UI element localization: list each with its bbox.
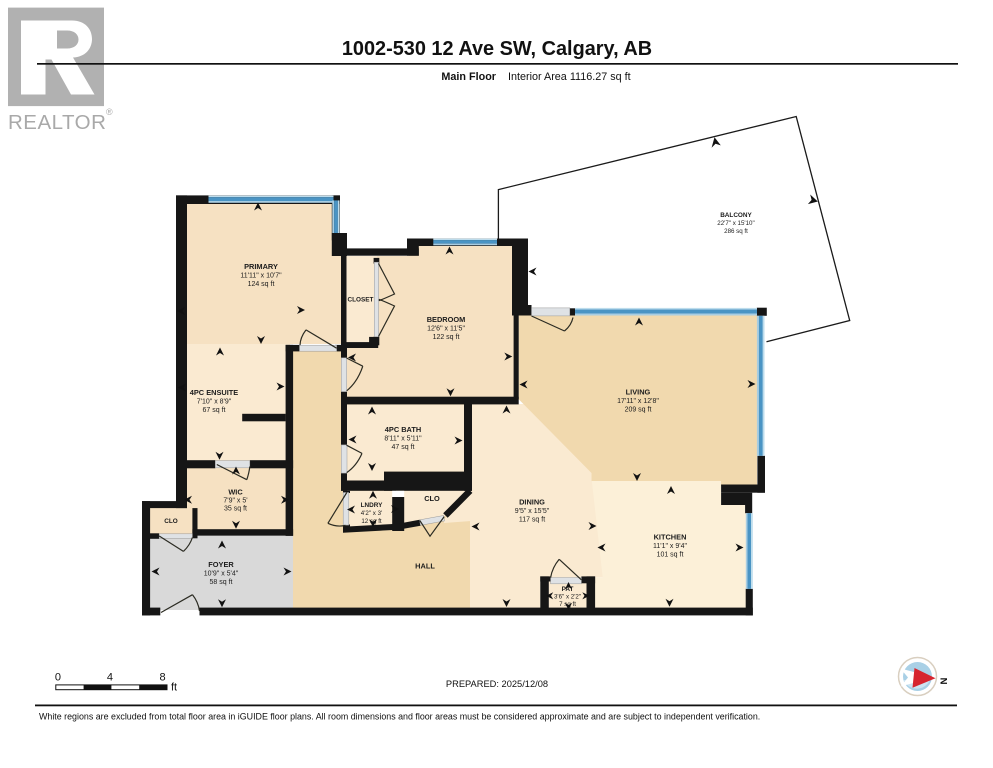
- svg-text:209 sq ft: 209 sq ft: [625, 407, 652, 414]
- svg-text:47 sq ft: 47 sq ft: [392, 444, 415, 451]
- svg-text:FOYER: FOYER: [208, 560, 234, 569]
- svg-text:122 sq ft: 122 sq ft: [433, 334, 460, 341]
- svg-text:Interior Area 1116.27 sq ft: Interior Area 1116.27 sq ft: [508, 71, 631, 83]
- svg-text:CLO: CLO: [164, 518, 178, 525]
- svg-text:8'11" x 5'11": 8'11" x 5'11": [384, 436, 422, 443]
- svg-text:REALTOR: REALTOR: [8, 111, 106, 134]
- svg-text:8: 8: [160, 672, 166, 684]
- svg-text:17'11" x 12'8": 17'11" x 12'8": [617, 398, 659, 405]
- svg-text:35 sq ft: 35 sq ft: [224, 506, 247, 513]
- svg-text:101 sq ft: 101 sq ft: [657, 552, 684, 559]
- svg-text:11'1" x 9'4": 11'1" x 9'4": [653, 543, 687, 550]
- svg-text:1002-530 12 Ave SW, Calgary, A: 1002-530 12 Ave SW, Calgary, AB: [342, 38, 652, 60]
- svg-text:DINING: DINING: [519, 498, 545, 507]
- svg-text:PRIMARY: PRIMARY: [244, 262, 278, 271]
- svg-text:4PC ENSUITE: 4PC ENSUITE: [190, 388, 239, 397]
- svg-text:22'7" x 15'10": 22'7" x 15'10": [717, 220, 754, 227]
- svg-text:KITCHEN: KITCHEN: [654, 533, 687, 542]
- svg-text:286 sq ft: 286 sq ft: [724, 228, 748, 235]
- svg-text:PREPARED: 2025/12/08: PREPARED: 2025/12/08: [446, 679, 548, 689]
- svg-text:10'9" x 5'4": 10'9" x 5'4": [204, 571, 239, 578]
- svg-text:11'11" x 10'7": 11'11" x 10'7": [240, 273, 282, 280]
- svg-text:7'9" x 5': 7'9" x 5': [223, 498, 247, 505]
- svg-text:58 sq ft: 58 sq ft: [210, 579, 233, 586]
- svg-text:LIVING: LIVING: [626, 388, 651, 397]
- svg-text:ft: ft: [171, 682, 177, 694]
- svg-text:12'6" x 11'5": 12'6" x 11'5": [427, 326, 465, 333]
- svg-text:N: N: [938, 678, 949, 685]
- svg-text:BALCONY: BALCONY: [720, 212, 752, 219]
- svg-text:CLOSET: CLOSET: [348, 297, 374, 304]
- svg-text:HALL: HALL: [415, 562, 435, 571]
- svg-text:7'10" x 8'9": 7'10" x 8'9": [197, 399, 232, 406]
- svg-text:LNDRY: LNDRY: [361, 502, 384, 509]
- svg-text:9'5" x 15'5": 9'5" x 15'5": [515, 508, 550, 515]
- svg-text:3'6" x 2'2": 3'6" x 2'2": [554, 594, 581, 601]
- svg-text:CLO: CLO: [424, 494, 440, 503]
- svg-text:124 sq ft: 124 sq ft: [248, 281, 275, 288]
- svg-text:WIC: WIC: [228, 488, 243, 497]
- svg-text:67 sq ft: 67 sq ft: [203, 407, 226, 414]
- svg-text:4'2" x 3': 4'2" x 3': [361, 510, 382, 517]
- svg-text:White regions are excluded fro: White regions are excluded from total fl…: [39, 712, 760, 722]
- svg-text:117 sq ft: 117 sq ft: [519, 517, 545, 524]
- svg-text:0: 0: [55, 672, 61, 684]
- svg-text:®: ®: [106, 107, 113, 117]
- svg-text:4PC BATH: 4PC BATH: [385, 425, 421, 434]
- svg-text:Main Floor: Main Floor: [441, 71, 496, 83]
- svg-text:BEDROOM: BEDROOM: [427, 315, 466, 324]
- svg-text:4: 4: [107, 672, 113, 684]
